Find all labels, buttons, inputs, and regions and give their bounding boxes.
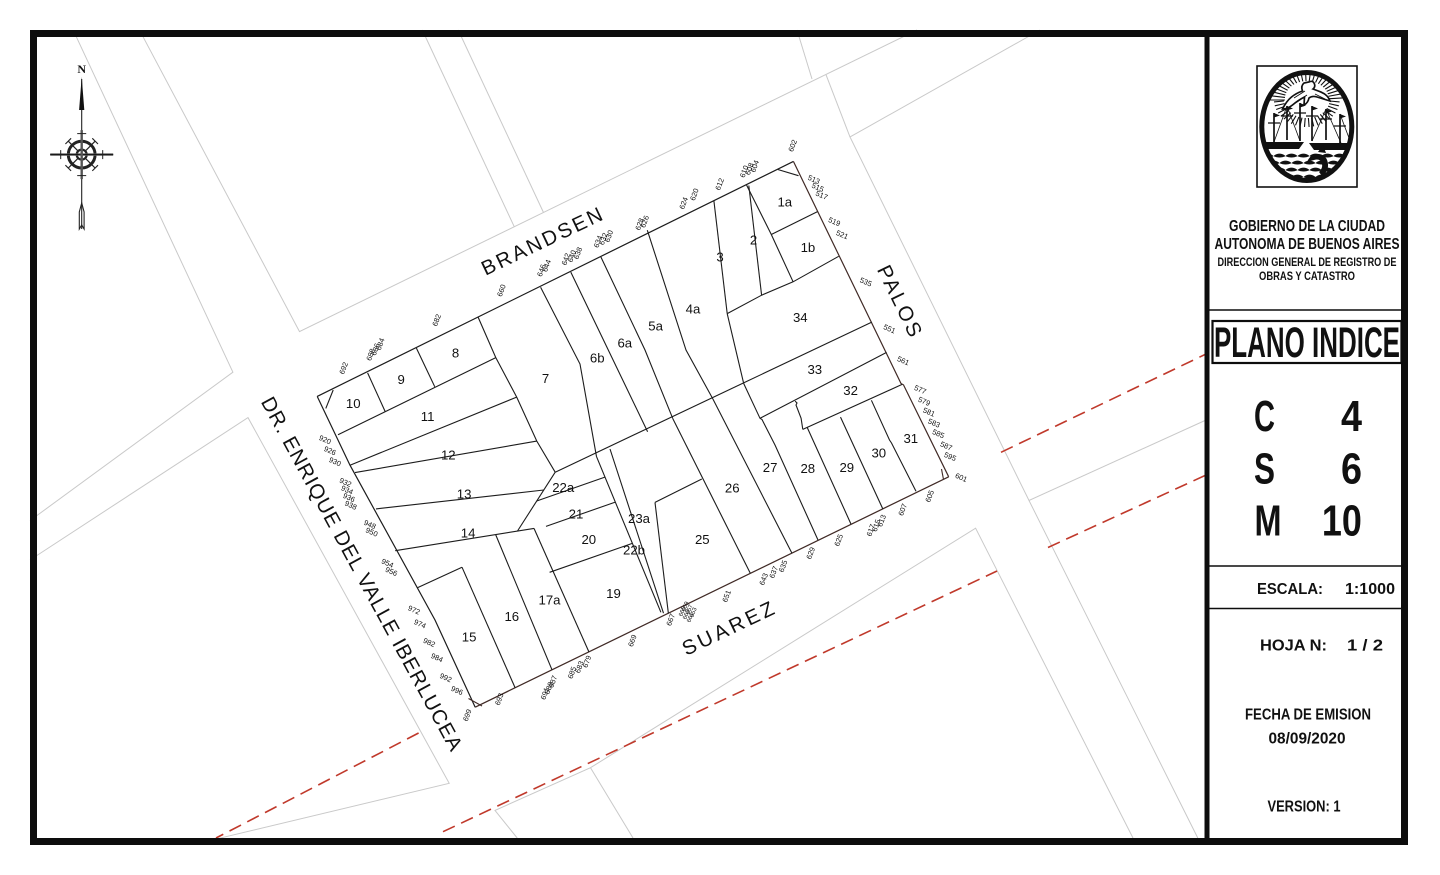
svg-text:OBRAS Y CATASTRO: OBRAS Y CATASTRO — [1259, 271, 1355, 283]
svg-text:29: 29 — [839, 460, 854, 475]
svg-text:10: 10 — [1322, 497, 1362, 546]
svg-text:6b: 6b — [590, 351, 605, 366]
svg-text:22b: 22b — [623, 543, 645, 558]
svg-text:15: 15 — [462, 630, 477, 645]
svg-text:17a: 17a — [538, 592, 561, 607]
svg-text:12: 12 — [441, 448, 456, 463]
svg-text:14: 14 — [461, 526, 476, 541]
svg-text:26: 26 — [725, 480, 740, 495]
svg-text:23a: 23a — [628, 511, 651, 526]
svg-text:10: 10 — [346, 396, 361, 411]
svg-text:1b: 1b — [801, 240, 816, 255]
svg-text:N: N — [77, 62, 86, 76]
svg-text:DIRECCION GENERAL DE REGISTRO: DIRECCION GENERAL DE REGISTRO DE — [1218, 257, 1397, 269]
svg-text:4: 4 — [1341, 392, 1362, 441]
svg-text:08/09/2020: 08/09/2020 — [1269, 731, 1346, 748]
svg-text:1a: 1a — [777, 195, 792, 210]
svg-text:7: 7 — [542, 371, 549, 386]
svg-text:13: 13 — [457, 486, 472, 501]
svg-text:20: 20 — [581, 532, 596, 547]
svg-text:1 / 2: 1 / 2 — [1347, 638, 1383, 655]
svg-text:8: 8 — [452, 346, 459, 361]
svg-text:1:1000: 1:1000 — [1345, 581, 1395, 598]
svg-text:5a: 5a — [648, 318, 663, 333]
svg-text:C: C — [1254, 392, 1275, 441]
svg-text:PLANO INDICE: PLANO INDICE — [1214, 319, 1400, 367]
svg-text:3: 3 — [716, 249, 723, 264]
svg-text:28: 28 — [800, 461, 815, 476]
svg-text:25: 25 — [695, 532, 710, 547]
svg-text:27: 27 — [763, 460, 778, 475]
svg-text:32: 32 — [843, 383, 858, 398]
svg-text:34: 34 — [793, 310, 808, 325]
svg-text:30: 30 — [871, 445, 886, 460]
svg-text:6: 6 — [1341, 445, 1362, 494]
svg-text:33: 33 — [807, 362, 822, 377]
svg-text:2: 2 — [750, 233, 757, 248]
svg-text:4a: 4a — [686, 302, 701, 317]
svg-text:FECHA DE EMISION: FECHA DE EMISION — [1245, 707, 1371, 724]
svg-text:HOJA N:: HOJA N: — [1260, 638, 1327, 655]
svg-text:6a: 6a — [617, 336, 632, 351]
svg-text:19: 19 — [606, 586, 621, 601]
svg-text:21: 21 — [569, 507, 584, 522]
svg-text:AUTONOMA DE BUENOS AIRES: AUTONOMA DE BUENOS AIRES — [1215, 236, 1400, 253]
svg-text:M: M — [1255, 497, 1282, 546]
svg-text:11: 11 — [421, 409, 435, 424]
svg-text:9: 9 — [398, 372, 405, 387]
svg-text:31: 31 — [903, 431, 918, 446]
svg-text:GOBIERNO DE LA CIUDAD: GOBIERNO DE LA CIUDAD — [1229, 218, 1385, 235]
svg-text:ESCALA:: ESCALA: — [1257, 581, 1323, 598]
svg-text:S: S — [1254, 445, 1275, 494]
svg-text:16: 16 — [504, 609, 519, 624]
svg-text:VERSION: 1: VERSION: 1 — [1268, 799, 1341, 816]
svg-text:22a: 22a — [552, 480, 575, 495]
